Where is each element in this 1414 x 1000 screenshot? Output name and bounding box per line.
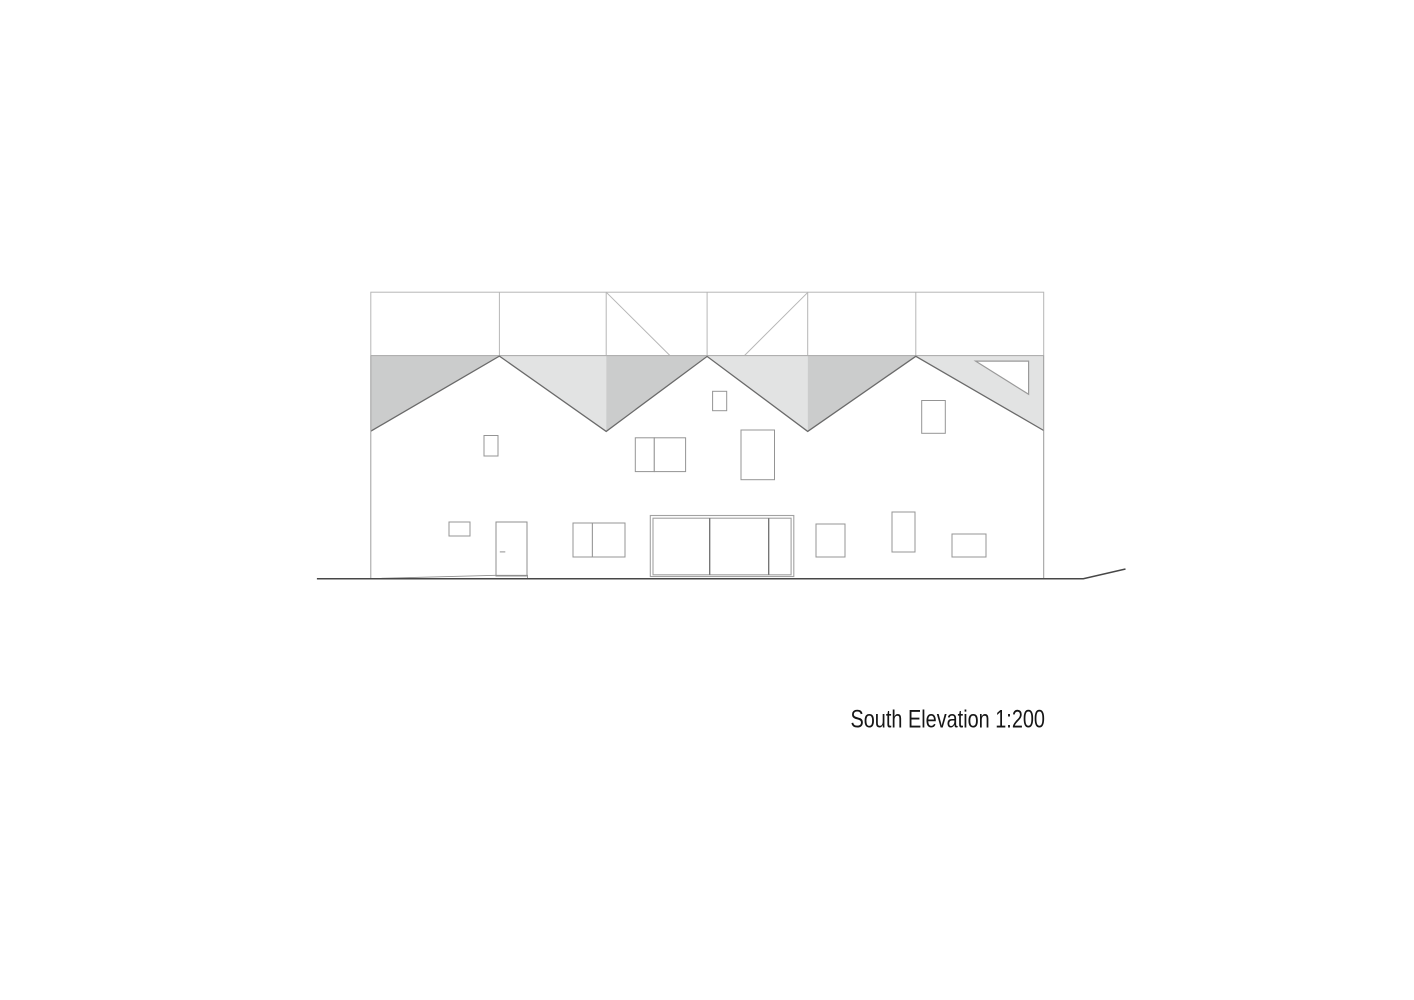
svg-text:South Elevation 1:200: South Elevation 1:200 [851,706,1046,734]
